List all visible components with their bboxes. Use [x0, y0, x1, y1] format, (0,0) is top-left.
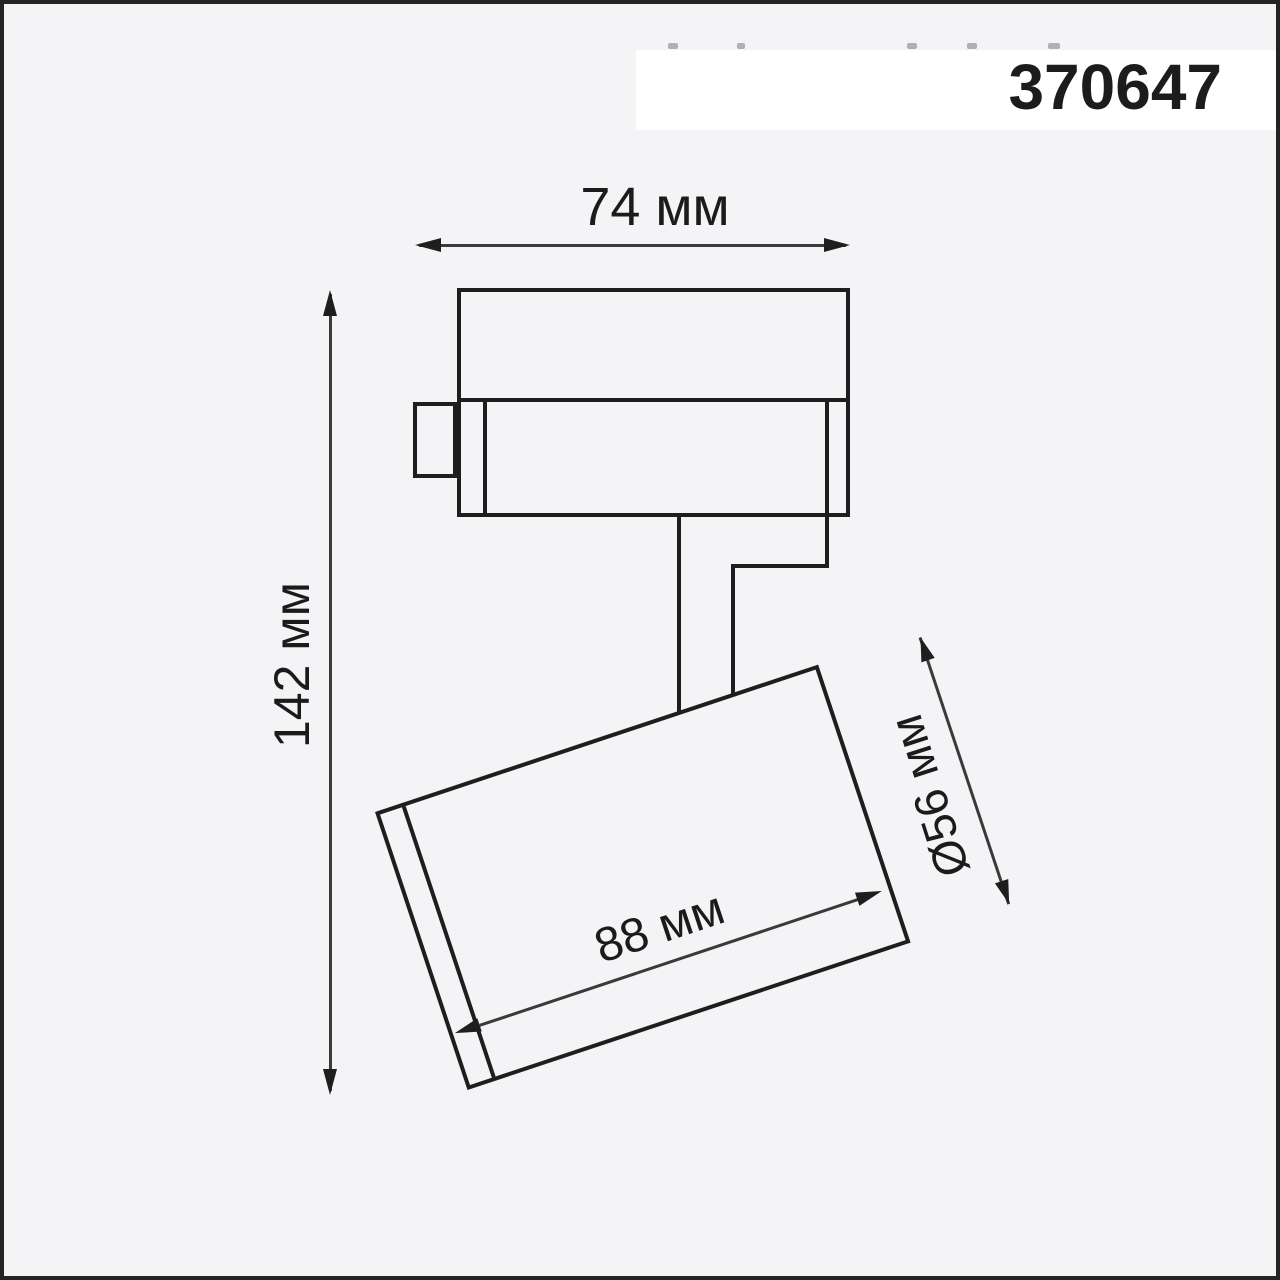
artifact-mark — [737, 43, 745, 49]
artifact-mark — [967, 43, 977, 49]
stem-step-line — [733, 564, 829, 568]
track-adapter-upper-housing — [457, 288, 850, 398]
arrowhead-down-icon — [995, 879, 1016, 906]
dim-diameter-label: Ø56 мм — [877, 708, 980, 883]
dimension-drawing-canvas: 370647 74 мм 142 мм 88 мм Ø56 мм — [0, 0, 1280, 1280]
adapter-side-tab — [413, 402, 457, 478]
dim-width-label: 74 мм — [580, 176, 729, 238]
artifact-mark — [1048, 43, 1060, 49]
arrowhead-down-icon — [323, 1069, 337, 1095]
dim-length-label: 88 мм — [433, 829, 886, 1026]
stem-right-line — [731, 564, 735, 695]
track-adapter-lower-housing — [457, 398, 850, 517]
stem-left-line — [677, 513, 681, 713]
artifact-mark — [668, 43, 678, 49]
adapter-inner-line-right — [825, 402, 829, 568]
article-number: 370647 — [1008, 50, 1222, 126]
dim-height-label: 142 мм — [263, 582, 321, 748]
dim-width-line — [419, 244, 846, 247]
artifact-mark — [907, 43, 917, 49]
arrowhead-right-icon — [824, 238, 850, 252]
dim-height-line — [329, 294, 332, 1091]
arrowhead-up-icon — [914, 635, 935, 662]
lamp-body-rear-rim-line — [402, 806, 496, 1078]
arrowhead-up-icon — [323, 290, 337, 316]
adapter-inner-line-left — [483, 402, 487, 513]
arrowhead-left-icon — [415, 238, 441, 252]
lamp-body: 88 мм — [375, 665, 911, 1090]
